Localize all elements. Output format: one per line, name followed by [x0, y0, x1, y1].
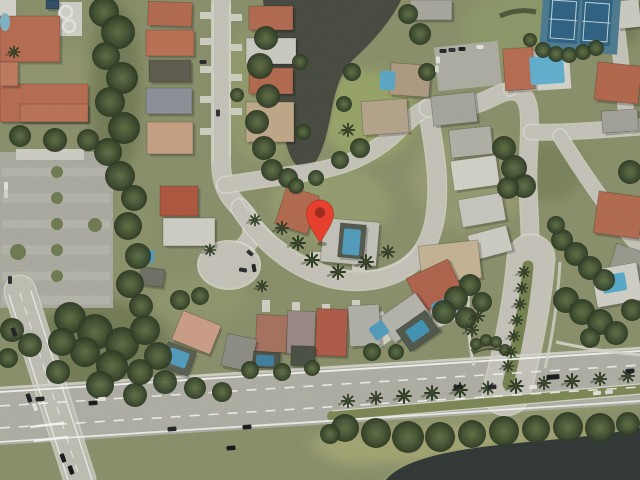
pin-shadow	[317, 242, 327, 246]
satellite-map[interactable]	[0, 0, 640, 480]
satellite-imagery	[0, 0, 640, 480]
pin-core	[315, 207, 325, 217]
